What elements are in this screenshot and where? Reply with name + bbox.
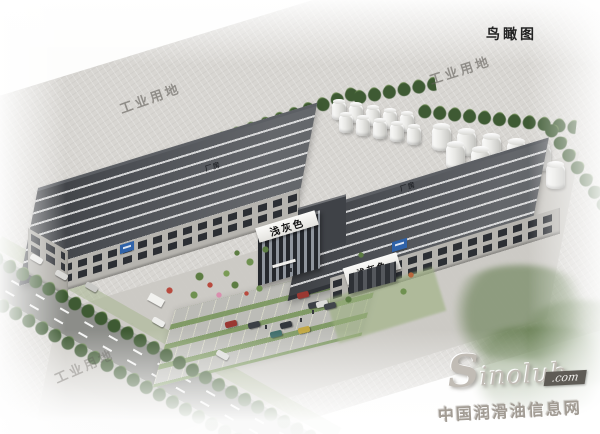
garden-shrub <box>234 250 240 256</box>
garden-shrub <box>358 252 364 258</box>
garden-shrub <box>244 291 249 296</box>
pedestrian <box>300 318 302 322</box>
storage-tank <box>356 117 370 136</box>
garden-shrub <box>216 292 222 298</box>
storage-tank <box>339 114 353 133</box>
pedestrian <box>312 310 314 314</box>
storage-tank <box>546 163 565 189</box>
pedestrian <box>265 325 267 329</box>
garden-shrub <box>256 285 263 292</box>
garden-shrub <box>400 288 407 295</box>
garden-shrub <box>207 282 213 288</box>
pedestrian <box>290 268 292 272</box>
garden-shrub <box>231 281 239 289</box>
garden-shrub <box>408 272 414 278</box>
garden-shrub <box>223 270 230 277</box>
sinolub-logo-s: S <box>446 346 480 399</box>
garden-shrub <box>166 287 173 294</box>
storage-tank <box>390 123 404 142</box>
garden-shrub <box>345 296 352 303</box>
aerial-rendering: 厂房 厂房 浅灰色 浅灰色 工业用地 工业用地 工业用地 鸟瞰图 Sinolub <box>0 0 600 434</box>
page-title: 鸟瞰图 <box>486 24 537 44</box>
sinolub-com-banner: .com <box>544 370 587 386</box>
sinolub-watermark: Sinolub .com 中国润滑油信息网 <box>419 343 598 426</box>
garden-shrub <box>246 258 254 266</box>
garden-shrub <box>190 291 198 299</box>
storage-tank <box>373 120 387 139</box>
garden-shrub <box>262 246 269 253</box>
storage-tank <box>407 126 421 145</box>
garden-shrub <box>195 272 204 281</box>
site-name: 中国润滑油信息网 <box>422 393 598 426</box>
